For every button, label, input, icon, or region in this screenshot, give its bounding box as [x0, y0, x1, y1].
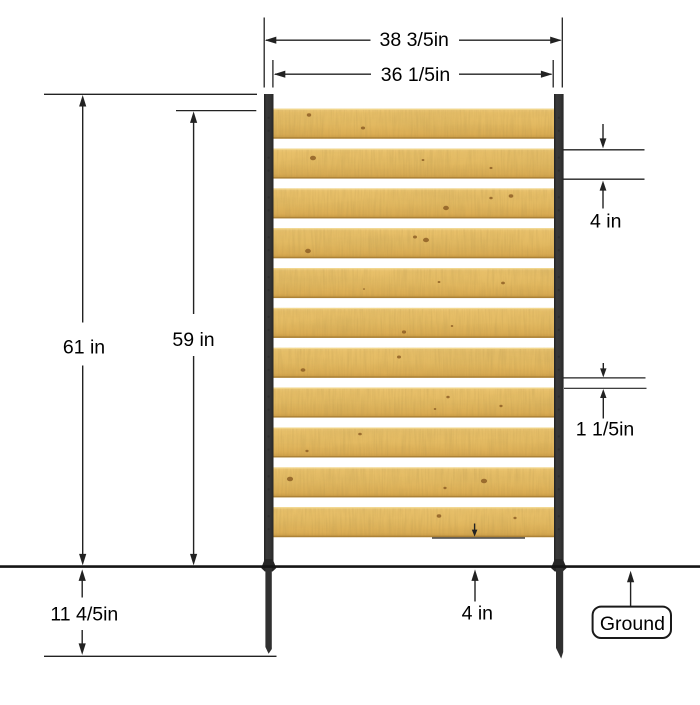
svg-text:4 in: 4 in — [590, 210, 621, 232]
svg-text:36 1/5in: 36 1/5in — [381, 64, 450, 86]
svg-text:38 3/5in: 38 3/5in — [379, 29, 448, 51]
svg-text:Ground: Ground — [600, 613, 665, 635]
svg-text:59 in: 59 in — [172, 329, 214, 351]
svg-text:61 in: 61 in — [63, 336, 105, 358]
svg-text:4 in: 4 in — [462, 602, 493, 624]
svg-text:11 4/5in: 11 4/5in — [50, 604, 118, 626]
svg-text:1 1/5in: 1 1/5in — [576, 419, 635, 441]
